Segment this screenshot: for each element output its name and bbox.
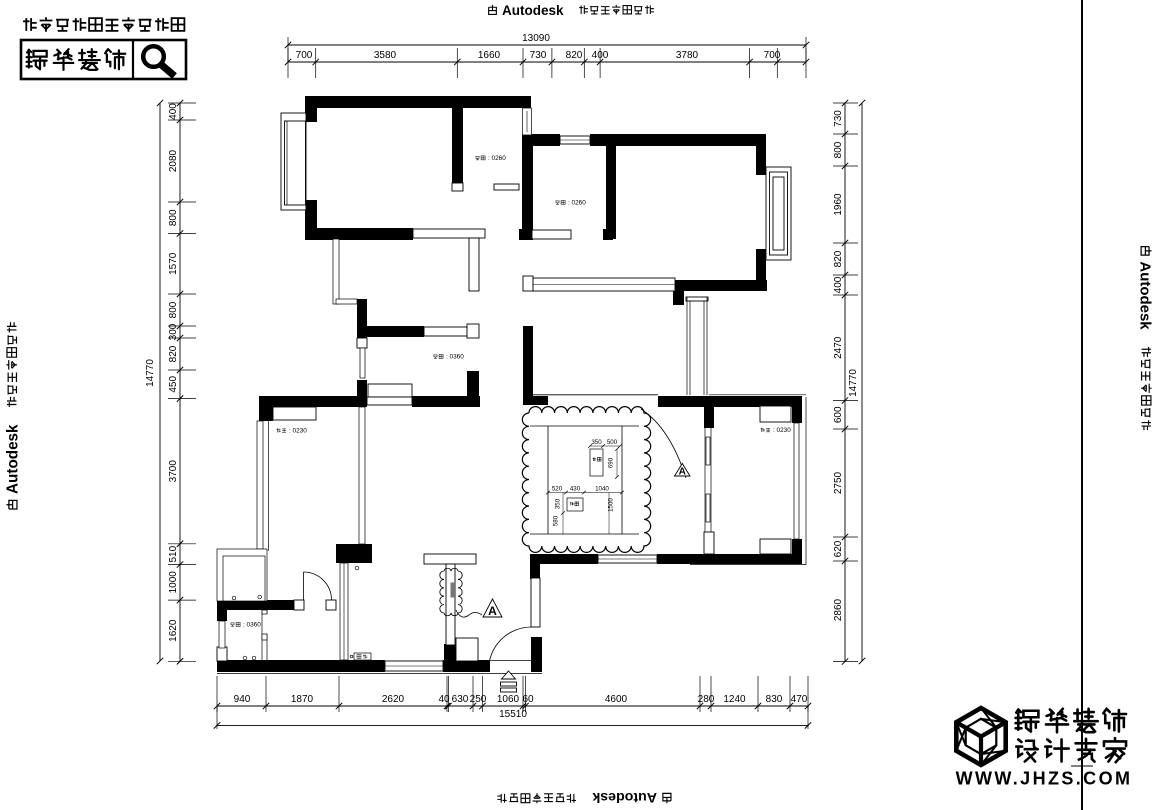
svg-text:700: 700 xyxy=(764,50,781,61)
svg-text:: 0260: : 0260 xyxy=(488,155,506,162)
svg-text:600: 600 xyxy=(833,406,844,423)
svg-text:: 0230: : 0230 xyxy=(773,427,791,434)
svg-text:940: 940 xyxy=(234,694,251,705)
svg-text:1660: 1660 xyxy=(478,50,501,61)
svg-text:1040: 1040 xyxy=(595,486,609,493)
svg-text:2750: 2750 xyxy=(833,471,844,494)
svg-text:: 0360: : 0360 xyxy=(446,354,464,361)
svg-text:Autodesk: Autodesk xyxy=(502,3,564,18)
svg-text:1960: 1960 xyxy=(833,193,844,216)
svg-text:40: 40 xyxy=(438,694,450,705)
svg-text:: 0360: : 0360 xyxy=(243,622,261,629)
svg-text:580: 580 xyxy=(553,515,560,526)
svg-text:15510: 15510 xyxy=(499,709,527,720)
svg-text:Autodesk: Autodesk xyxy=(1137,261,1154,330)
svg-text:1570: 1570 xyxy=(168,252,179,275)
svg-text:13090: 13090 xyxy=(522,33,550,44)
svg-text:820: 820 xyxy=(168,345,179,362)
svg-text:1240: 1240 xyxy=(723,694,746,705)
svg-text:1870: 1870 xyxy=(291,694,314,705)
svg-text:400: 400 xyxy=(592,50,609,61)
svg-text:430: 430 xyxy=(570,486,581,493)
svg-text:520: 520 xyxy=(552,486,563,493)
svg-text:820: 820 xyxy=(566,50,583,61)
svg-text:A: A xyxy=(679,467,686,478)
svg-text:14770: 14770 xyxy=(145,359,156,387)
svg-text:1500: 1500 xyxy=(608,498,615,512)
svg-text:830: 830 xyxy=(766,694,783,705)
svg-text:1000: 1000 xyxy=(168,571,179,594)
svg-text:2860: 2860 xyxy=(833,598,844,621)
svg-text:620: 620 xyxy=(833,540,844,557)
svg-text:2470: 2470 xyxy=(833,336,844,359)
svg-text:3700: 3700 xyxy=(168,460,179,483)
svg-text:1620: 1620 xyxy=(168,619,179,642)
svg-text:300: 300 xyxy=(168,323,179,340)
svg-text:800: 800 xyxy=(168,301,179,318)
svg-text:60: 60 xyxy=(522,694,534,705)
svg-text:510: 510 xyxy=(168,545,179,562)
svg-text:400: 400 xyxy=(833,276,844,293)
svg-text:Autodesk: Autodesk xyxy=(4,424,21,494)
svg-text:820: 820 xyxy=(833,250,844,267)
svg-text:450: 450 xyxy=(168,376,179,393)
svg-text:Autodesk: Autodesk xyxy=(592,789,657,805)
svg-text:14770: 14770 xyxy=(848,369,859,397)
svg-text:350: 350 xyxy=(591,439,602,446)
svg-text:730: 730 xyxy=(530,50,547,61)
svg-text:280: 280 xyxy=(698,694,715,705)
svg-text:2620: 2620 xyxy=(382,694,405,705)
svg-text:800: 800 xyxy=(168,209,179,226)
svg-text:470: 470 xyxy=(791,694,808,705)
svg-text:250: 250 xyxy=(470,694,487,705)
svg-text:690: 690 xyxy=(608,457,615,468)
svg-text:: 0230: : 0230 xyxy=(289,428,307,435)
svg-text:: 0260: : 0260 xyxy=(568,200,586,207)
svg-text:1060: 1060 xyxy=(497,694,520,705)
svg-text:500: 500 xyxy=(607,439,618,446)
svg-text:630: 630 xyxy=(452,694,469,705)
svg-text:4600: 4600 xyxy=(605,694,628,705)
svg-text:2080: 2080 xyxy=(168,149,179,172)
svg-text:350: 350 xyxy=(555,498,562,509)
svg-text:A: A xyxy=(488,604,497,618)
svg-text:800: 800 xyxy=(833,141,844,158)
svg-text:700: 700 xyxy=(296,50,313,61)
svg-text:400: 400 xyxy=(168,103,179,120)
svg-text:730: 730 xyxy=(833,110,844,127)
svg-text:WWW.JHZS.COM: WWW.JHZS.COM xyxy=(956,769,1133,789)
svg-text:3580: 3580 xyxy=(374,50,397,61)
svg-text:3780: 3780 xyxy=(676,50,699,61)
